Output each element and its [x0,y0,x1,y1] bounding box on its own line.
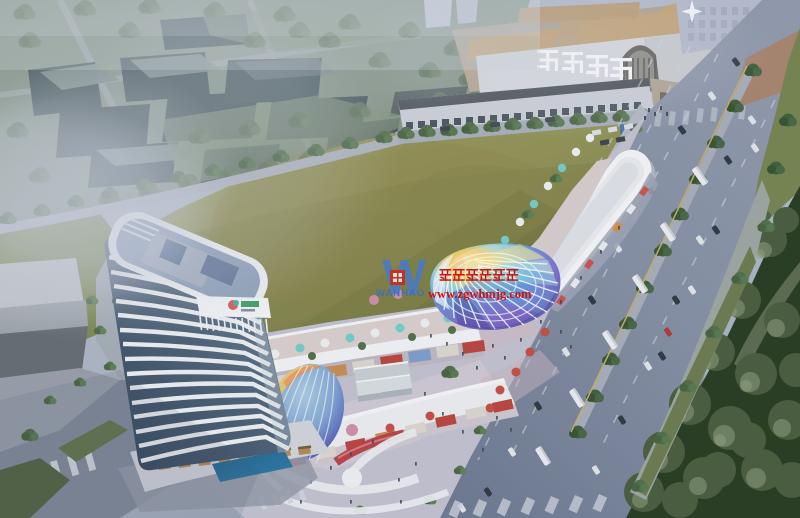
svg-text:www.zgwhmjg.com: www.zgwhmjg.com [428,287,532,301]
svg-text:WANHAO: WANHAO [376,288,425,299]
